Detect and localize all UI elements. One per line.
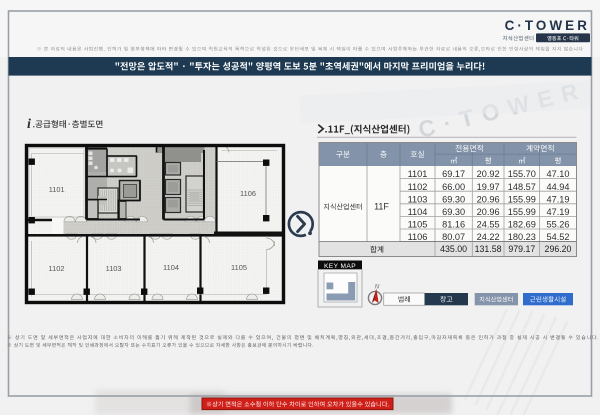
- svg-text:20.96: 20.96: [477, 207, 500, 217]
- svg-text:47.10: 47.10: [547, 169, 570, 179]
- svg-text:C·TOWER: C·TOWER: [505, 18, 590, 33]
- svg-text:180.23: 180.23: [508, 232, 536, 242]
- svg-text:155.70: 155.70: [508, 169, 536, 179]
- svg-text:81.16: 81.16: [442, 220, 465, 230]
- svg-text:155.99: 155.99: [508, 194, 536, 204]
- svg-text:131.58: 131.58: [475, 244, 502, 254]
- svg-text:1102: 1102: [49, 264, 65, 273]
- svg-text:148.57: 148.57: [508, 182, 536, 192]
- svg-text:182.69: 182.69: [508, 220, 536, 230]
- svg-text:i: i: [27, 117, 31, 132]
- svg-text:55.26: 55.26: [547, 220, 570, 230]
- svg-text:1104: 1104: [163, 263, 179, 272]
- svg-text:47.19: 47.19: [547, 207, 570, 217]
- svg-text:1104: 1104: [408, 207, 428, 217]
- svg-text:1106: 1106: [240, 189, 256, 198]
- svg-text:1103: 1103: [408, 194, 428, 204]
- svg-text:69.30: 69.30: [442, 207, 465, 217]
- svg-text:11F: 11F: [374, 201, 389, 211]
- svg-text:1102: 1102: [408, 182, 428, 192]
- svg-text:24.55: 24.55: [477, 220, 500, 230]
- svg-text:1101: 1101: [408, 169, 428, 179]
- svg-text:KEY MAP: KEY MAP: [324, 263, 356, 270]
- svg-text:19.97: 19.97: [477, 182, 500, 192]
- svg-text:54.52: 54.52: [547, 232, 570, 242]
- svg-text:80.07: 80.07: [442, 232, 465, 242]
- svg-text:1105: 1105: [408, 220, 428, 230]
- svg-text:24.22: 24.22: [477, 232, 500, 242]
- svg-text:1103: 1103: [106, 264, 122, 273]
- svg-text:155.99: 155.99: [508, 207, 536, 217]
- svg-text:979.17: 979.17: [508, 244, 535, 254]
- svg-text:69.30: 69.30: [442, 194, 465, 204]
- svg-text:20.96: 20.96: [477, 194, 500, 204]
- svg-text:1105: 1105: [231, 263, 247, 272]
- svg-text:1106: 1106: [408, 232, 428, 242]
- svg-text:69.17: 69.17: [442, 169, 465, 179]
- svg-text:20.92: 20.92: [477, 169, 500, 179]
- svg-text:N: N: [375, 284, 380, 291]
- svg-text:66.00: 66.00: [442, 182, 465, 192]
- svg-text:47.19: 47.19: [547, 194, 570, 204]
- svg-text:435.00: 435.00: [440, 244, 467, 254]
- svg-text:1101: 1101: [49, 185, 65, 194]
- svg-text:44.94: 44.94: [547, 182, 570, 192]
- svg-text:296.20: 296.20: [545, 244, 572, 254]
